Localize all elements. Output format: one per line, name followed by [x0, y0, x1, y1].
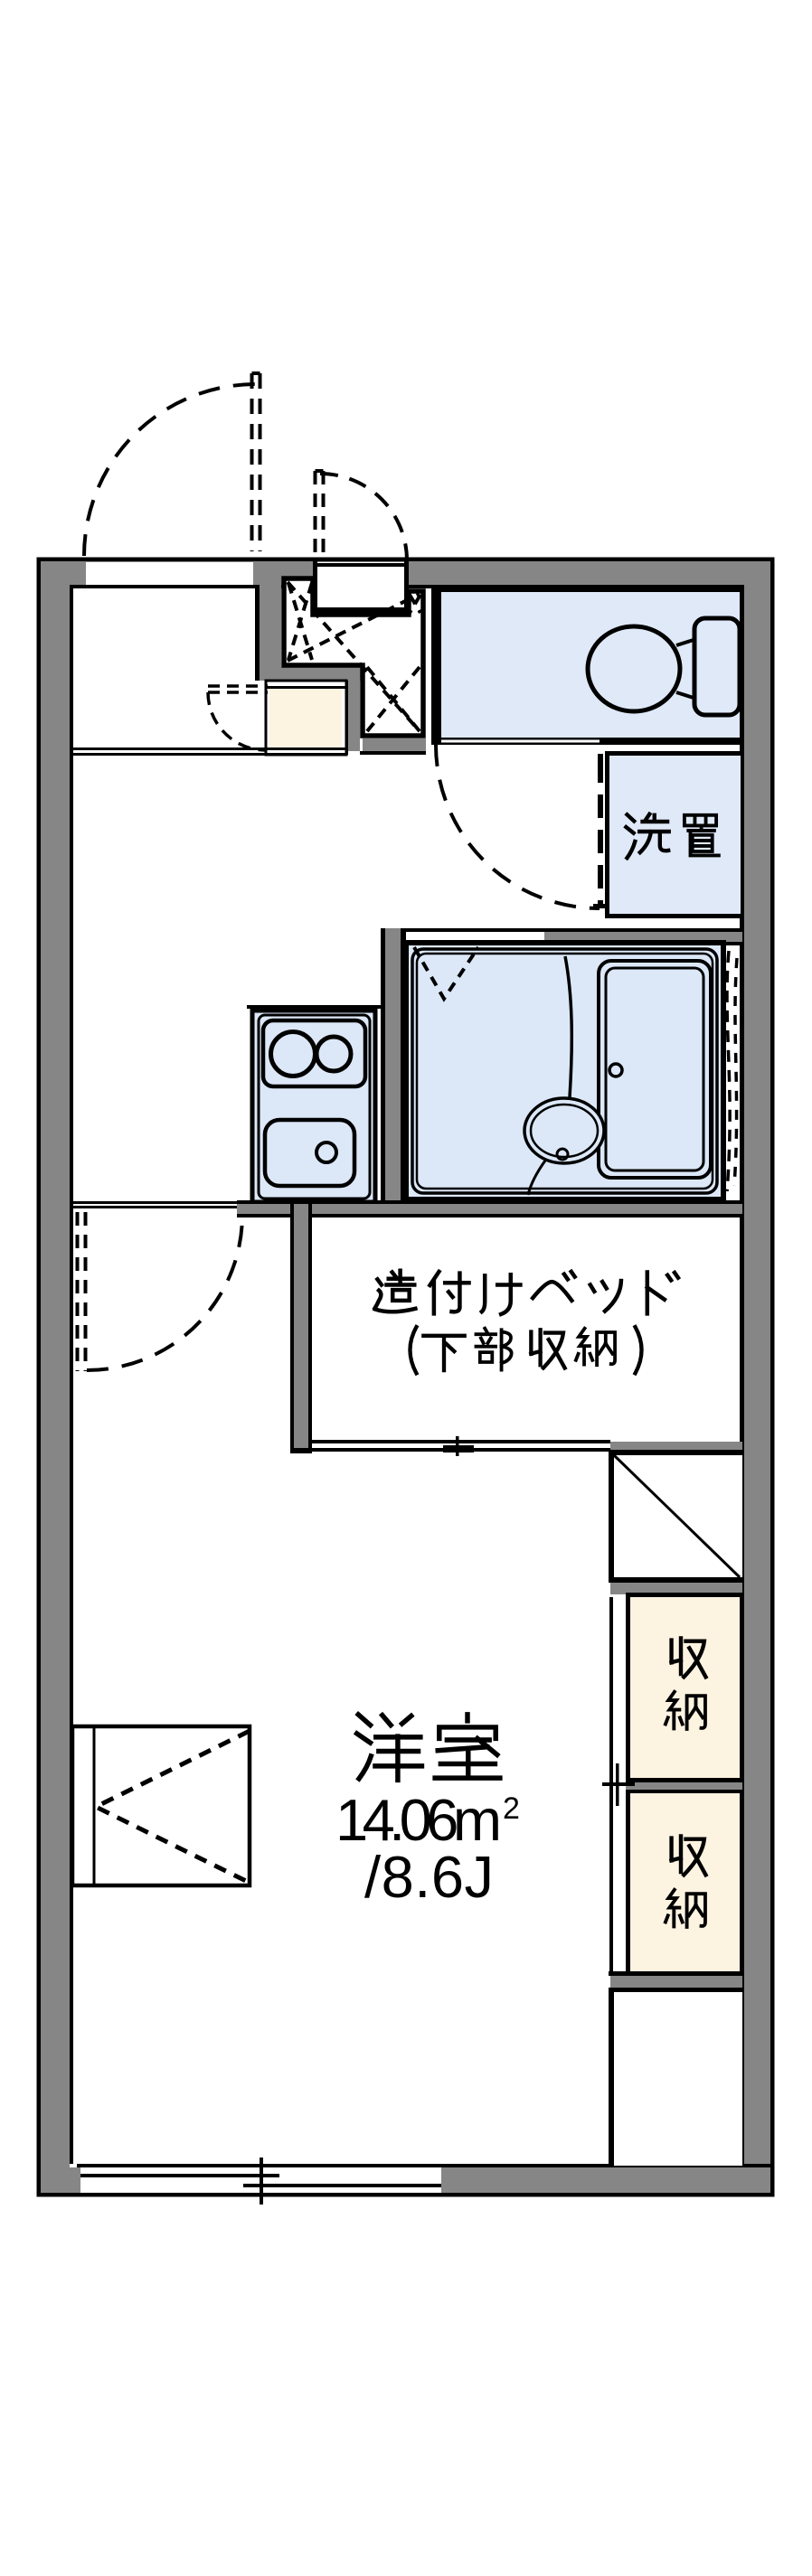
svg-text:2: 2 — [503, 1791, 520, 1826]
svg-text:/8.6J: /8.6J — [364, 1844, 494, 1910]
